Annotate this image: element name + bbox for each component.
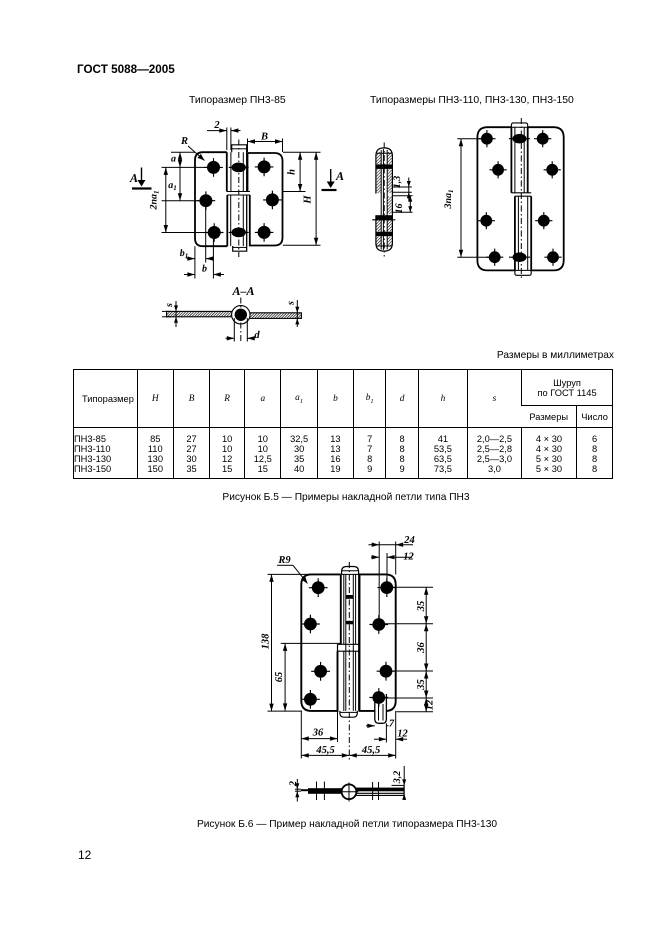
svg-text:45,5: 45,5 — [361, 745, 380, 756]
svg-text:А–А: А–А — [231, 284, 254, 298]
svg-text:35: 35 — [416, 679, 427, 691]
svg-text:a: a — [171, 154, 176, 165]
svg-text:R9: R9 — [277, 555, 291, 566]
svg-text:2na1: 2na1 — [149, 190, 161, 210]
svg-text:35: 35 — [416, 601, 427, 613]
svg-text:b: b — [202, 264, 207, 275]
svg-text:R: R — [180, 136, 188, 147]
svg-text:h: h — [287, 169, 298, 175]
svg-text:d: d — [254, 330, 260, 341]
svg-text:65: 65 — [274, 672, 285, 683]
svg-text:3,2: 3,2 — [392, 771, 403, 785]
svg-text:s: s — [286, 301, 297, 306]
svg-text:B: B — [260, 132, 268, 143]
svg-text:45,5: 45,5 — [315, 745, 334, 756]
svg-text:36: 36 — [312, 728, 324, 739]
svg-text:36: 36 — [416, 642, 427, 654]
svg-text:A: A — [335, 169, 344, 183]
svg-text:1,3: 1,3 — [392, 176, 403, 189]
svg-text:H: H — [303, 195, 314, 205]
svg-text:3na1: 3na1 — [443, 189, 455, 209]
svg-text:12: 12 — [425, 699, 436, 710]
svg-text:a1: a1 — [168, 180, 177, 192]
svg-text:A: A — [129, 171, 138, 185]
svg-text:7: 7 — [389, 719, 395, 730]
svg-text:138: 138 — [261, 633, 272, 650]
svg-text:s: s — [164, 303, 175, 308]
